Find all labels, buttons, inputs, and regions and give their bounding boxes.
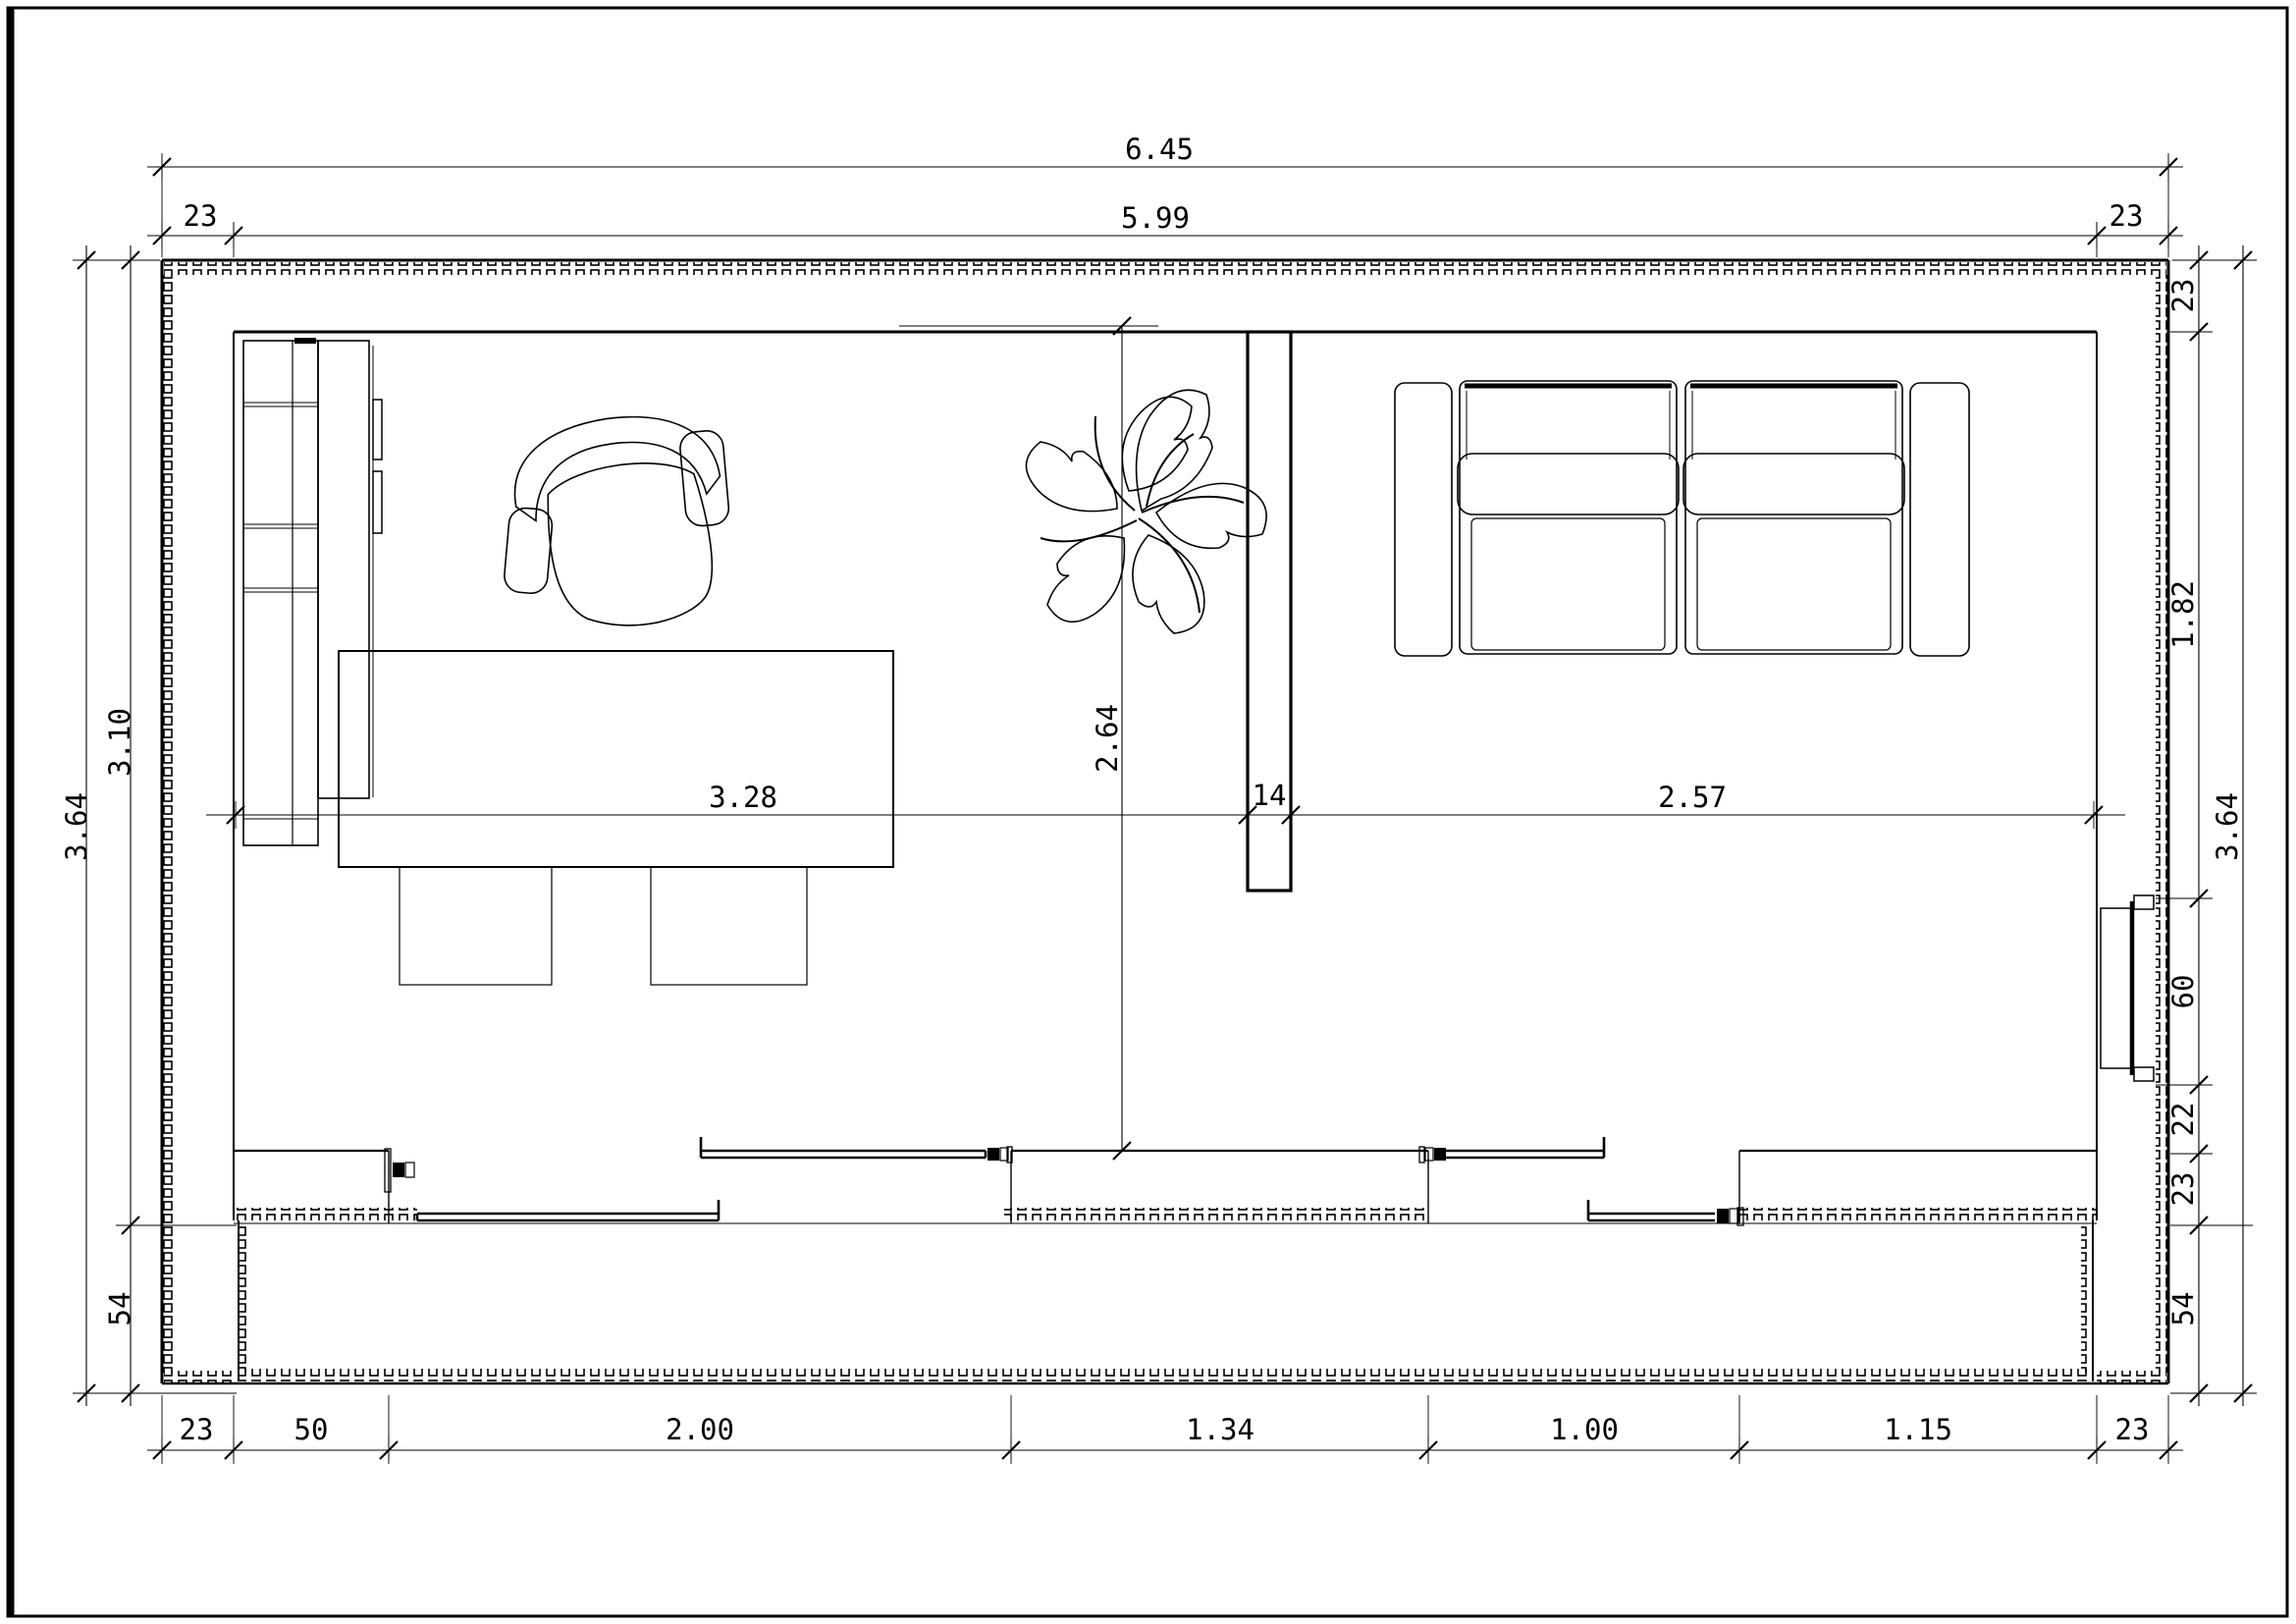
dim-total-width: 6.45 <box>1125 133 1194 166</box>
wall-cabinet <box>243 338 382 845</box>
dimension-labels: 6.45 23 5.99 23 23 50 2.00 1.34 1.00 1.1… <box>60 133 2244 1446</box>
dim-bottom-pier: 50 <box>294 1413 329 1446</box>
dim-bottom-wall-right: 23 <box>2115 1413 2150 1446</box>
tick-slashes <box>78 158 2252 1459</box>
dim-left-porch: 54 <box>103 1292 136 1326</box>
dim-left-room: 3.10 <box>103 708 136 777</box>
dim-bottom-between: 1.34 <box>1186 1413 1255 1446</box>
dim-bottom-window-small: 1.00 <box>1550 1413 1619 1446</box>
dim-inner-width: 5.99 <box>1121 201 1190 235</box>
dim-right-window: 60 <box>2166 975 2200 1009</box>
dim-bottom-wall-left: 23 <box>180 1413 214 1446</box>
office-chair <box>481 403 747 643</box>
dim-right-total: 3.64 <box>2211 792 2244 861</box>
side-table <box>400 867 552 985</box>
furniture <box>243 338 1969 985</box>
dim-interior-right-zone: 2.57 <box>1658 781 1727 814</box>
sofa-seat <box>1683 381 1904 654</box>
window-small <box>1419 1137 1743 1225</box>
dim-interior-left-zone: 3.28 <box>709 781 777 814</box>
dim-right-below-window: 22 <box>2166 1103 2200 1137</box>
right-wall-window <box>2101 895 2154 1081</box>
sofa <box>1395 381 1969 656</box>
plant <box>1026 390 1266 633</box>
dim-right-wall-bottom: 23 <box>2166 1172 2200 1207</box>
tick-hairs <box>73 153 2257 1464</box>
dim-bottom-window-large: 2.00 <box>666 1413 734 1446</box>
dimension-lines <box>86 167 2243 1450</box>
dim-wall-left: 23 <box>184 199 218 233</box>
dim-left-total: 3.64 <box>60 792 93 861</box>
dim-bottom-pier-right: 1.15 <box>1884 1413 1952 1446</box>
wall-insulation-hatch <box>163 262 2168 1383</box>
dim-right-upper: 1.82 <box>2166 580 2200 649</box>
floor-plan-sheet: 6.45 23 5.99 23 23 50 2.00 1.34 1.00 1.1… <box>0 0 2296 1624</box>
window-large <box>385 1137 1012 1220</box>
dim-interior-depth: 2.64 <box>1091 704 1124 773</box>
dim-right-porch: 54 <box>2166 1292 2200 1326</box>
sofa-seat <box>1458 381 1679 654</box>
dim-right-wall-top: 23 <box>2166 279 2200 313</box>
floor-plan-canvas: 6.45 23 5.99 23 23 50 2.00 1.34 1.00 1.1… <box>0 0 2296 1624</box>
side-table <box>651 867 807 985</box>
witness-lines <box>79 155 2253 1459</box>
dim-wall-right: 23 <box>2109 199 2144 233</box>
dim-interior-partition: 14 <box>1253 779 1287 812</box>
desk <box>339 651 893 867</box>
